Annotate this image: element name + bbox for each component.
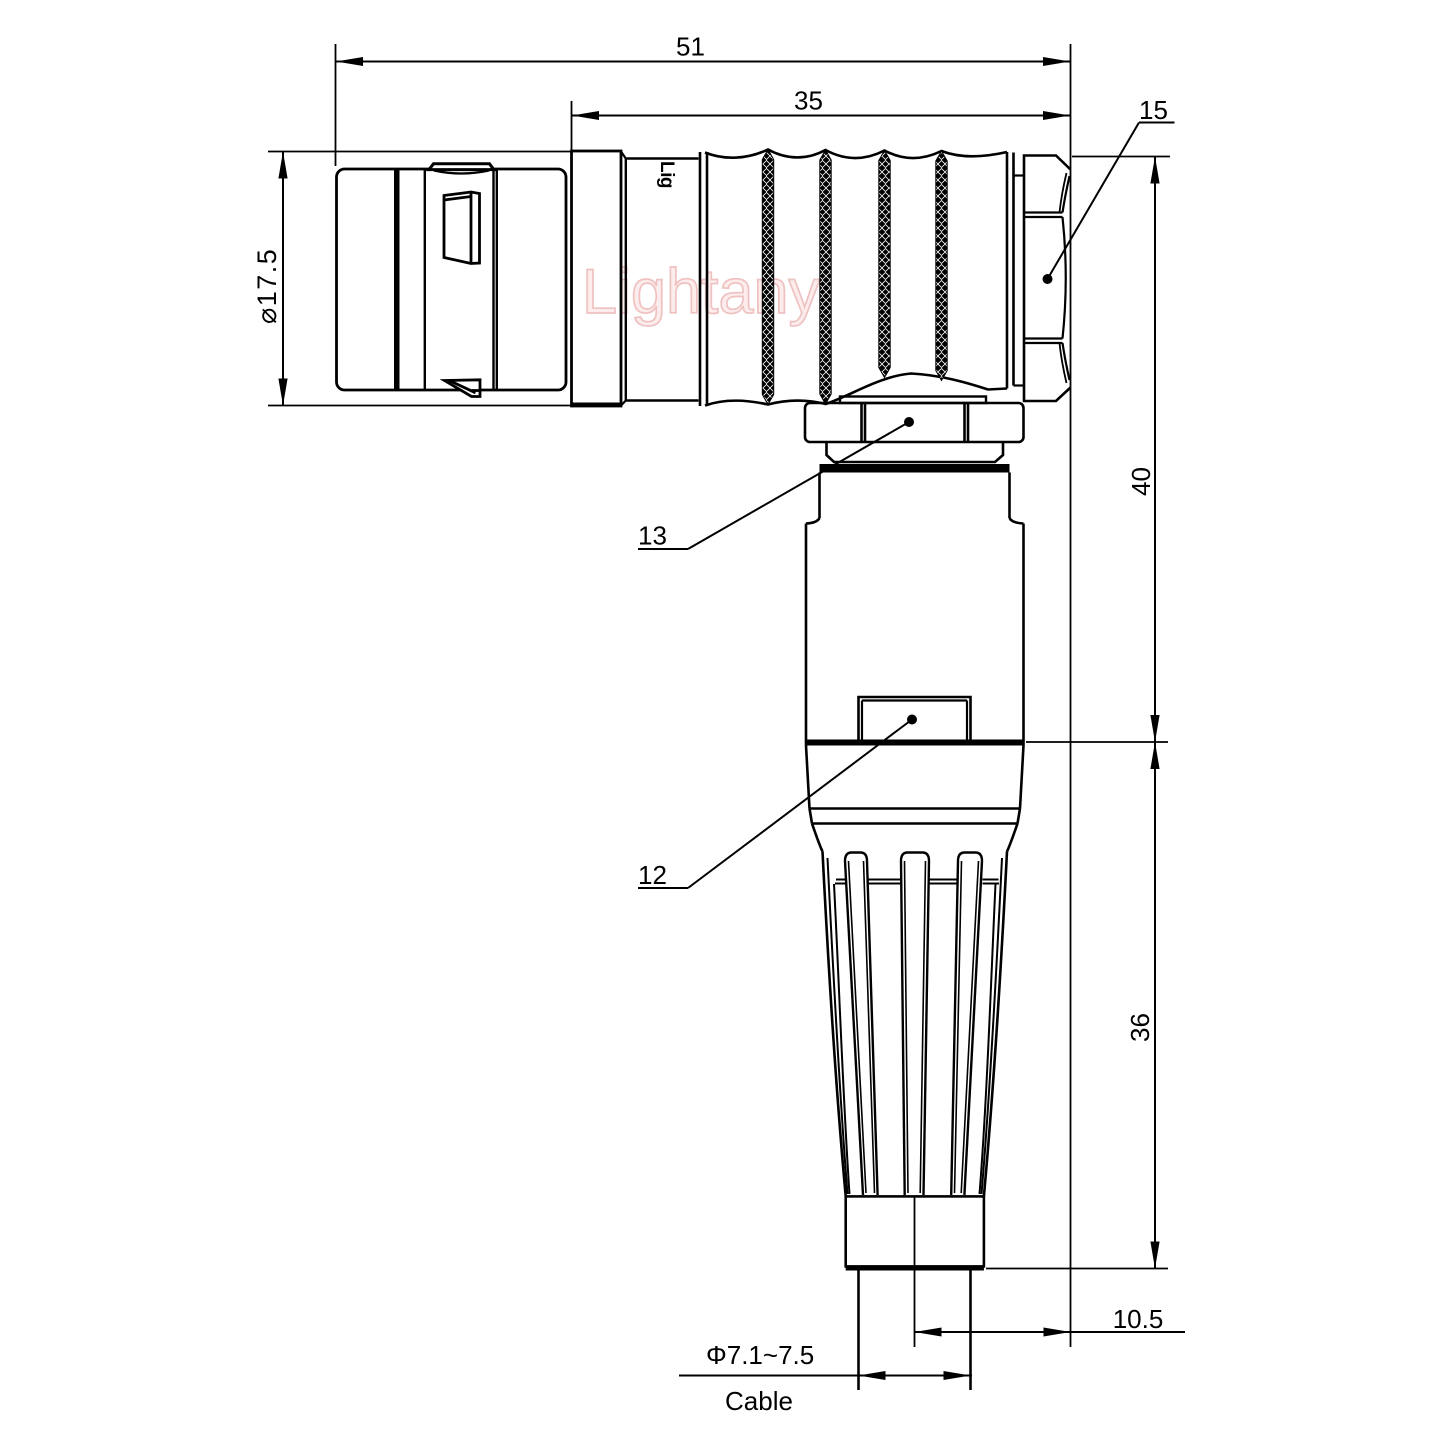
svg-text:Cable: Cable <box>725 1386 793 1416</box>
svg-text:35: 35 <box>794 86 823 116</box>
svg-text:Lig: Lig <box>656 161 677 188</box>
svg-text:40: 40 <box>1126 467 1156 496</box>
svg-text:51: 51 <box>676 32 705 62</box>
svg-text:⌀17.5: ⌀17.5 <box>252 248 282 324</box>
svg-text:36: 36 <box>1125 1013 1155 1042</box>
svg-text:Φ7.1~7.5: Φ7.1~7.5 <box>706 1340 814 1370</box>
svg-text:12: 12 <box>638 860 667 890</box>
svg-text:13: 13 <box>638 521 667 551</box>
svg-text:10.5: 10.5 <box>1113 1304 1164 1334</box>
svg-text:15: 15 <box>1139 95 1168 125</box>
